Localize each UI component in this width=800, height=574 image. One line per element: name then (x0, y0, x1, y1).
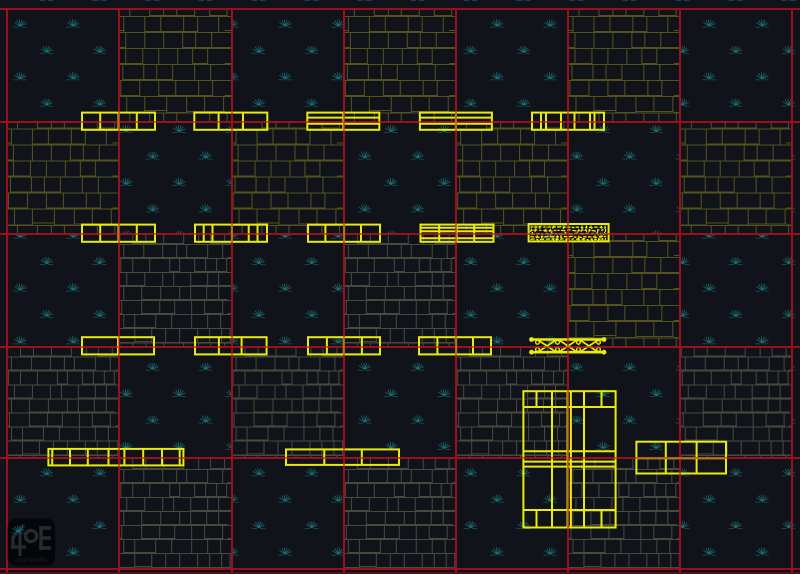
svg-text:SOFTWARE: SOFTWARE (15, 558, 48, 564)
